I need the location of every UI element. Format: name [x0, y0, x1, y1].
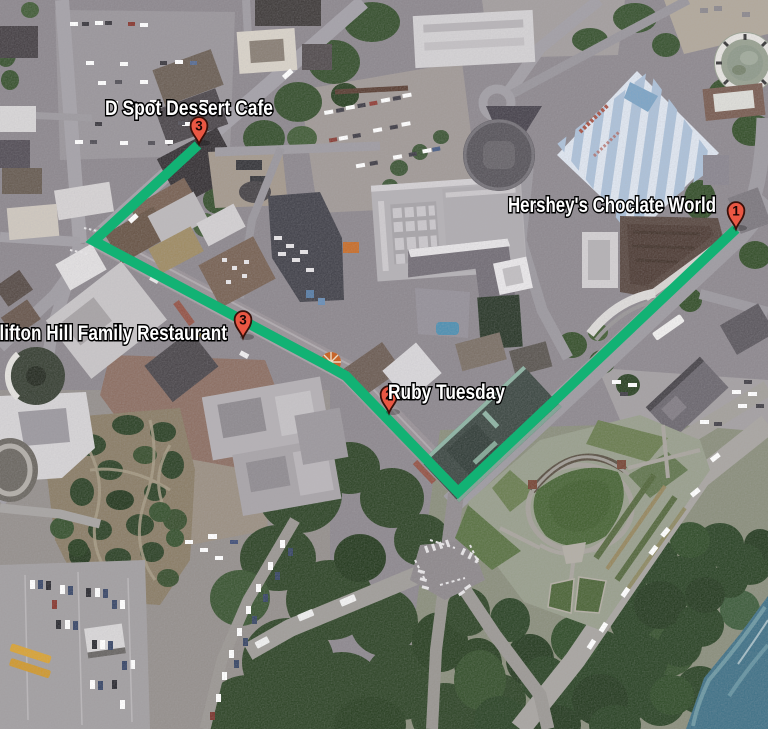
svg-text:3: 3 [195, 119, 202, 134]
svg-text:Hershey's Choclate World: Hershey's Choclate World [508, 194, 716, 217]
svg-text:D Spot Dessert Cafe: D Spot Dessert Cafe [105, 97, 273, 120]
svg-text:1: 1 [732, 204, 740, 219]
svg-text:Clifton Hill Family Restaurant: Clifton Hill Family Restaurant [0, 322, 227, 345]
svg-text:3: 3 [239, 313, 246, 328]
svg-text:Ruby Tuesday: Ruby Tuesday [388, 381, 505, 404]
